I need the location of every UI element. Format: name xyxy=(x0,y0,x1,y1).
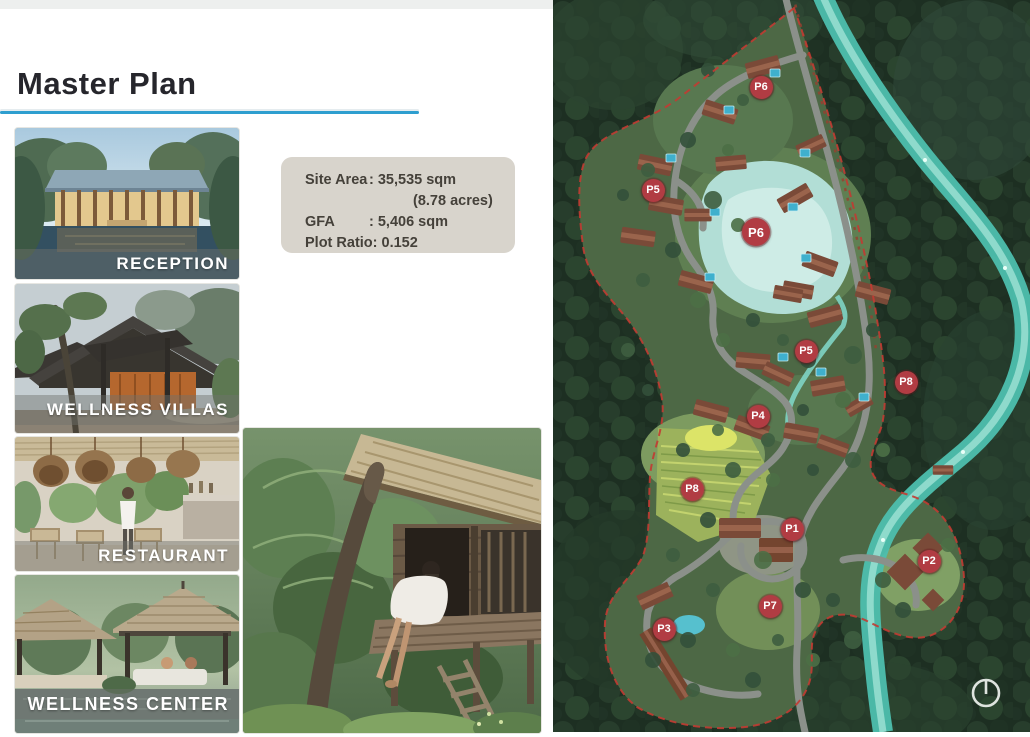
photo-caption-band: WELLNESS CENTER xyxy=(15,689,239,719)
slide-top-edge xyxy=(0,0,553,9)
plot-marker-p8: P8 xyxy=(895,371,918,394)
plot-marker-p2: P2 xyxy=(918,550,941,573)
info-row-gfa: GFA: 5,406 sqm xyxy=(305,212,515,233)
photo-caption-band: RECEPTION xyxy=(15,249,239,279)
lifestyle-hut-illustration xyxy=(243,428,541,733)
master-plan-map: P6P5P6P5P8P4P8P1P2P7P3 xyxy=(553,0,1030,732)
slide-master-plan: { "title": "Master Plan", "info_box": { … xyxy=(0,0,1030,732)
plot-marker-p5: P5 xyxy=(795,340,818,363)
photo-wellness-villas: WELLNESS VILLAS xyxy=(14,283,240,434)
photo-wellness-center: WELLNESS CENTER xyxy=(14,574,240,734)
plot-marker-p4: P4 xyxy=(747,405,770,428)
photo-lifestyle-hut xyxy=(242,427,542,734)
photo-caption-band: WELLNESS VILLAS xyxy=(15,395,239,425)
photo-caption: WELLNESS CENTER xyxy=(27,694,229,715)
info-row-site-area: Site Area: 35,535 sqm xyxy=(305,170,515,191)
marker-layer: P6P5P6P5P8P4P8P1P2P7P3 xyxy=(553,0,1030,732)
photo-reception: RECEPTION xyxy=(14,127,240,280)
plot-marker-p8: P8 xyxy=(681,478,704,501)
info-row-acres: (8.78 acres) xyxy=(305,191,515,212)
plot-marker-p1: P1 xyxy=(781,518,804,541)
photo-caption: RESTAURANT xyxy=(98,546,229,566)
photo-caption: RECEPTION xyxy=(116,254,229,274)
photo-restaurant: RESTAURANT xyxy=(14,436,240,572)
info-row-plot-ratio: Plot Ratio: 0.152 xyxy=(305,233,515,254)
site-info-box: Site Area: 35,535 sqm (8.78 acres) GFA: … xyxy=(281,157,515,253)
plot-marker-p3: P3 xyxy=(653,618,676,641)
page-title: Master Plan xyxy=(17,66,197,102)
plot-marker-p6: P6 xyxy=(742,218,770,246)
title-underline xyxy=(0,111,419,114)
photo-caption-band: RESTAURANT xyxy=(15,541,239,571)
plot-marker-p6: P6 xyxy=(750,76,773,99)
plot-marker-p7: P7 xyxy=(759,595,782,618)
photo-caption: WELLNESS VILLAS xyxy=(47,400,229,420)
plot-marker-p5: P5 xyxy=(642,179,665,202)
